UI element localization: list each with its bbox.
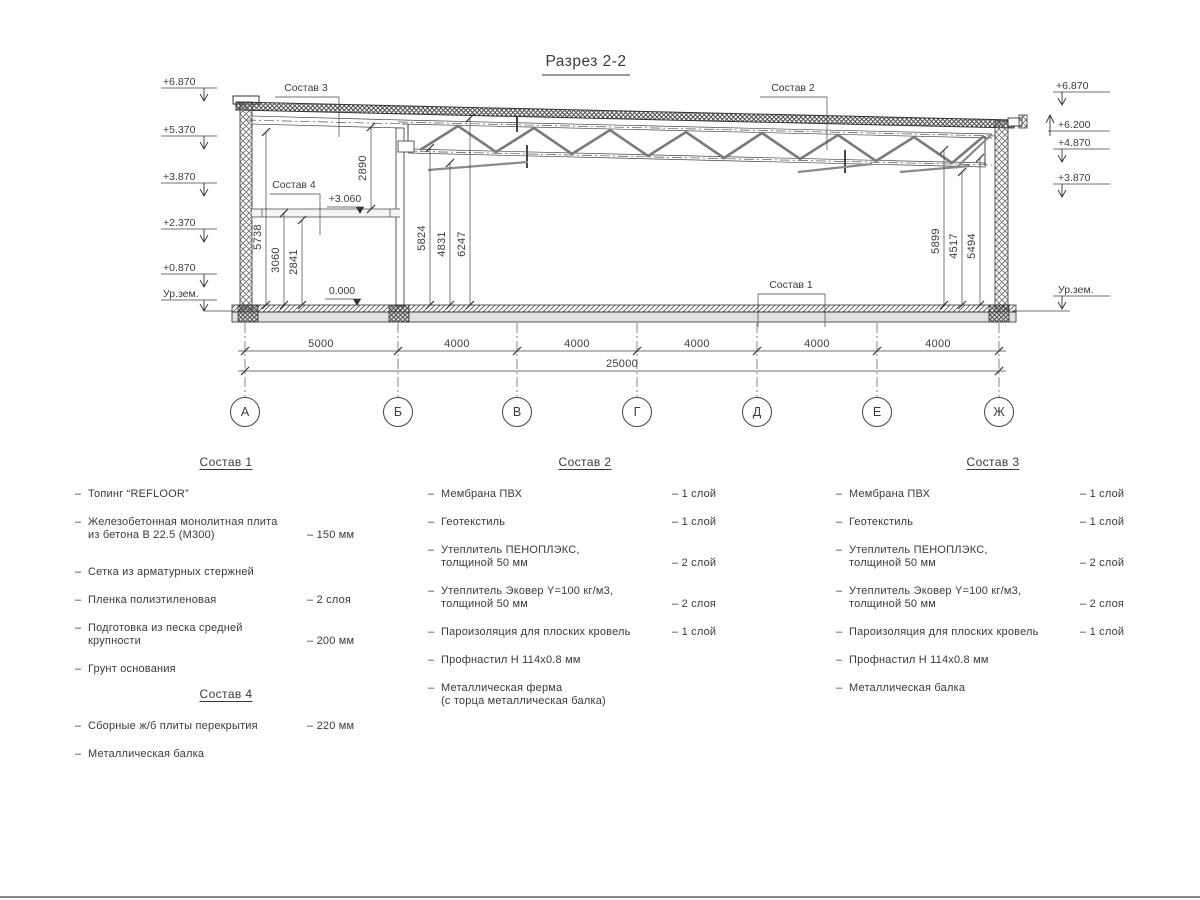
item-dash: –: [428, 488, 441, 501]
level-mark: 0.000: [329, 285, 355, 297]
item-value: – 1 слой: [1074, 626, 1150, 639]
list-item: –Металлическая ферма(с торца металлическ…: [428, 682, 742, 708]
list-title: Состав 4: [75, 688, 377, 701]
item-text: Пленка полиэтиленовая: [88, 594, 216, 607]
elevation-value: +6.200: [1058, 119, 1091, 131]
item-dash: –: [836, 516, 849, 529]
callout-label: Состав 3: [284, 82, 328, 94]
list-item: –Утеплитель ПЕНОПЛЭКС,толщиной 50 мм – 2…: [428, 544, 742, 570]
sheet-bottom-border: [0, 896, 1200, 898]
item-dash: –: [836, 654, 849, 667]
item-text: Сетка из арматурных стержней: [88, 566, 254, 579]
axis-label: Е: [873, 405, 881, 419]
list-item: –Пароизоляция для плоских кровель – 1 сл…: [836, 626, 1150, 639]
item-value: – 2 слоя: [666, 598, 742, 611]
item-dash: –: [428, 654, 441, 667]
truss-bottom-centerline: [402, 151, 992, 165]
item-value: – 2 слой: [1074, 557, 1150, 570]
item-text: Сборные ж/б плиты перекрытия: [88, 720, 258, 733]
list-item: –Сетка из арматурных стержней: [75, 566, 377, 579]
item-text: Утеплитель Эковер Y=100 кг/м3,: [849, 585, 1021, 598]
roof-slab: [236, 102, 1014, 128]
item-text: толщиной 50 мм: [849, 598, 1021, 611]
dim-value: 5824: [416, 225, 428, 251]
item-dash: –: [428, 544, 441, 570]
item-value: – 1 слой: [666, 516, 742, 529]
list-item: –Металлическая балка: [836, 682, 1150, 695]
item-text: толщиной 50 мм: [441, 557, 580, 570]
item-value: – 200 мм: [301, 635, 377, 648]
list-item: –Утеплитель Эковер Y=100 кг/м3,толщиной …: [428, 585, 742, 611]
item-dash: –: [836, 682, 849, 695]
list-item: –Сборные ж/б плиты перекрытия – 220 мм: [75, 720, 377, 733]
item-text: Профнастил Н 114х0.8 мм: [849, 654, 989, 667]
wall-right: [995, 121, 1008, 312]
axis-label: Ж: [993, 405, 1005, 419]
drawing-title: Разрез 2-2: [545, 53, 626, 70]
dim-value: 4000: [444, 338, 470, 350]
elevation-value: +3.870: [163, 171, 196, 183]
dim-value: 4000: [925, 338, 951, 350]
dim-value: 6247: [456, 231, 468, 257]
item-value: – 1 слой: [1074, 516, 1150, 529]
item-text: толщиной 50 мм: [849, 557, 988, 570]
slab-topping: [232, 305, 1016, 312]
item-text: Утеплитель ПЕНОПЛЭКС,: [849, 544, 988, 557]
item-dash: –: [75, 748, 88, 761]
dim-value: 4517: [948, 233, 960, 259]
elevation-value: +0.870: [163, 262, 196, 274]
footing-b: [389, 305, 409, 322]
item-text: крупности: [88, 635, 243, 648]
parapet-block-right: [1019, 115, 1027, 128]
dim-value: 5899: [930, 228, 942, 254]
item-value: – 150 мм: [301, 529, 377, 542]
elev-arrows-left: [200, 88, 208, 311]
elev-lines-left: [161, 88, 233, 311]
item-dash: –: [75, 566, 88, 579]
item-text: Грунт основания: [88, 663, 176, 676]
item-text: Пароизоляция для плоских кровель: [849, 626, 1039, 639]
composition-list-3: Состав 3 –Мембрана ПВХ – 1 слой –Геотекс…: [836, 456, 1150, 710]
item-dash: –: [428, 585, 441, 611]
dim-value: 4831: [436, 231, 448, 257]
list-item: –Утеплитель Эковер Y=100 кг/м3,толщиной …: [836, 585, 1150, 611]
elevation-marks-left: +6.870 +5.370 +3.870 +2.370 +0.870 Ур.зе…: [161, 76, 233, 311]
item-text: из бетона В 22.5 (М300): [88, 529, 278, 542]
item-dash: –: [836, 585, 849, 611]
composition-list-4: Состав 4 –Сборные ж/б плиты перекрытия –…: [75, 688, 377, 776]
axis-label: В: [513, 405, 521, 419]
item-text: Металлическая балка: [88, 748, 204, 761]
item-text: Профнастил Н 114х0.8 мм: [441, 654, 581, 667]
item-dash: –: [75, 720, 88, 733]
level-mark: +3.060: [329, 193, 362, 205]
list-item: –Грунт основания: [75, 663, 377, 676]
list-title: Состав 3: [836, 456, 1150, 469]
item-dash: –: [428, 682, 441, 708]
wall-left: [240, 102, 252, 312]
footing-a: [238, 305, 258, 322]
dim-value: 5738: [252, 224, 264, 250]
elevation-value: +3.870: [1058, 172, 1091, 184]
grid-axes: А Б В Г Д Е Ж: [231, 323, 1014, 427]
elevation-value: +4.870: [1058, 137, 1091, 149]
dim-value: 4000: [564, 338, 590, 350]
item-dash: –: [428, 516, 441, 529]
composition-list-2: Состав 2 –Мембрана ПВХ – 1 слой –Геотекс…: [428, 456, 742, 723]
floor-slab: [232, 305, 1016, 322]
item-text: Геотекстиль: [849, 516, 913, 529]
item-text: Подготовка из песка средней: [88, 622, 243, 635]
item-dash: –: [836, 544, 849, 570]
axis-label: Г: [634, 405, 641, 419]
item-text: (с торца металлическая балка): [441, 695, 606, 708]
list-title: Состав 1: [75, 456, 377, 469]
list-item: –Железобетонная монолитная плитаиз бетон…: [75, 516, 377, 542]
item-value: – 1 слой: [1074, 488, 1150, 501]
list-item: –Профнастил Н 114х0.8 мм: [428, 654, 742, 667]
dimension-chain-bottom: 5000 4000 4000 4000 4000 4000 25000: [238, 338, 1006, 375]
item-value: – 220 мм: [301, 720, 377, 733]
list-item: –Металлическая балка: [75, 748, 377, 761]
elevation-value: +6.870: [163, 76, 196, 88]
axis-label: Б: [394, 405, 402, 419]
dim-value: 5494: [966, 233, 978, 259]
dim-value: 2841: [288, 249, 300, 275]
item-text: Металлическая ферма: [441, 682, 606, 695]
elevation-value: Ур.зем.: [1058, 284, 1094, 296]
dim-total: 25000: [606, 358, 638, 370]
item-text: Пароизоляция для плоских кровель: [441, 626, 631, 639]
list-title: Состав 2: [428, 456, 742, 469]
axis-label: Д: [753, 405, 762, 419]
item-text: Утеплитель Эковер Y=100 кг/м3,: [441, 585, 613, 598]
composition-list-1: Состав 1 –Топинг “REFLOOR” –Железобетонн…: [75, 456, 377, 691]
elevation-value: +2.370: [163, 217, 196, 229]
mezzanine-floor: [252, 209, 400, 217]
item-value: – 1 слой: [666, 488, 742, 501]
truss-support-bracket: [398, 141, 414, 152]
elevation-value: +5.370: [163, 124, 196, 136]
item-text: Геотекстиль: [441, 516, 505, 529]
item-dash: –: [428, 626, 441, 639]
section-drawing: Разрез 2-2: [0, 0, 1200, 450]
dim-value: 2890: [357, 155, 369, 181]
slab-base: [232, 312, 1016, 322]
chord-splices: [517, 116, 845, 173]
item-dash: –: [75, 622, 88, 648]
elevation-value: +6.870: [1056, 80, 1089, 92]
roof-assembly: [233, 96, 1027, 128]
item-text: Топинг “REFLOOR”: [88, 488, 189, 501]
item-text: Мембрана ПВХ: [849, 488, 930, 501]
item-dash: –: [75, 663, 88, 676]
list-item: –Топинг “REFLOOR”: [75, 488, 377, 501]
item-value: – 2 слоя: [1074, 598, 1150, 611]
dim-value: 4000: [804, 338, 830, 350]
list-item: –Подготовка из песка среднейкрупности – …: [75, 622, 377, 648]
item-dash: –: [836, 488, 849, 501]
item-value: – 1 слой: [666, 626, 742, 639]
item-dash: –: [75, 516, 88, 542]
item-dash: –: [836, 626, 849, 639]
item-text: Железобетонная монолитная плита: [88, 516, 278, 529]
item-text: Утеплитель ПЕНОПЛЭКС,: [441, 544, 580, 557]
drawing-sheet: Разрез 2-2: [0, 0, 1200, 900]
list-item: –Пленка полиэтиленовая – 2 слоя: [75, 594, 377, 607]
item-text: толщиной 50 мм: [441, 598, 613, 611]
dim-value: 4000: [684, 338, 710, 350]
item-text: Металлическая балка: [849, 682, 965, 695]
list-item: –Профнастил Н 114х0.8 мм: [836, 654, 1150, 667]
list-item: –Мембрана ПВХ – 1 слой: [836, 488, 1150, 501]
roof-beam-centerline: [246, 120, 408, 124]
elevation-value: Ур.зем.: [163, 288, 199, 300]
list-item: –Геотекстиль – 1 слой: [428, 516, 742, 529]
item-dash: –: [75, 594, 88, 607]
list-item: –Утеплитель ПЕНОПЛЭКС,толщиной 50 мм – 2…: [836, 544, 1150, 570]
callout-label: Состав 4: [272, 179, 316, 191]
list-item: –Пароизоляция для плоских кровель – 1 сл…: [428, 626, 742, 639]
callout-label: Состав 2: [771, 82, 815, 94]
list-item: –Мембрана ПВХ – 1 слой: [428, 488, 742, 501]
list-item: –Геотекстиль – 1 слой: [836, 516, 1150, 529]
item-value: – 2 слой: [666, 557, 742, 570]
item-text: Мембрана ПВХ: [441, 488, 522, 501]
axis-label: А: [241, 405, 250, 419]
item-dash: –: [75, 488, 88, 501]
footing-zh: [989, 305, 1009, 322]
dim-value: 5000: [308, 338, 334, 350]
mezzanine-slab: [252, 209, 400, 217]
dim-value: 3060: [270, 247, 282, 273]
callout-label: Состав 1: [769, 279, 813, 291]
item-value: – 2 слоя: [301, 594, 377, 607]
